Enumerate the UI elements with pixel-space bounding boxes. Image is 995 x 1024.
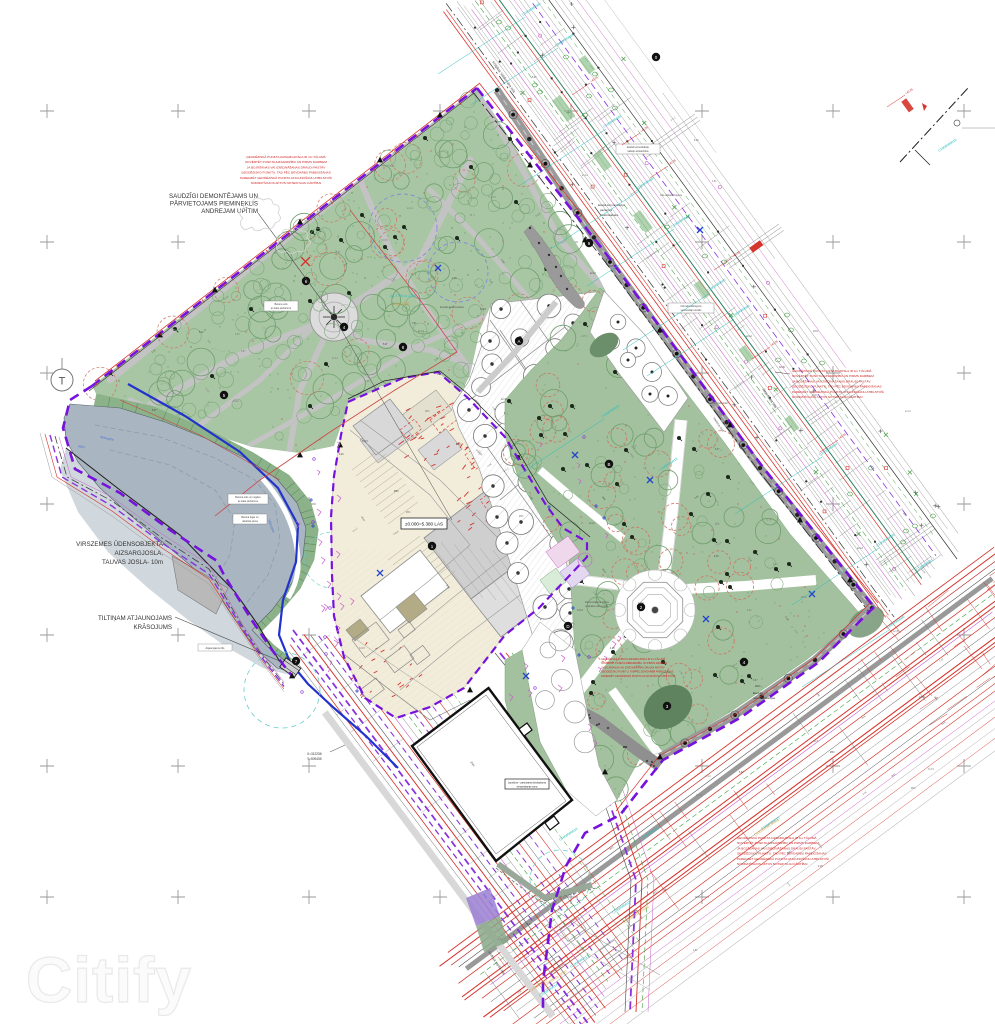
svg-text:±0.000=5.380 LAS: ±0.000=5.380 LAS — [405, 522, 443, 527]
svg-text:NOVĒRTĒT PUNKTA AIZSARDZĪBU UN: NOVĒRTĒT PUNKTA AIZSARDZĪBU UN PIRMS DAR… — [737, 841, 819, 845]
svg-text:5.42: 5.42 — [199, 332, 204, 334]
svg-text:Esošās: Esošās — [753, 691, 763, 695]
svg-text:Cits labiekārt.: Cits labiekārt. — [712, 401, 729, 405]
svg-text:6.20: 6.20 — [339, 454, 344, 456]
svg-text:Betona sols un nogāze: Betona sols un nogāze — [235, 496, 261, 499]
svg-text:5.07: 5.07 — [563, 898, 568, 900]
svg-text:h=2.5: h=2.5 — [928, 769, 935, 771]
svg-text:A: A — [517, 339, 520, 344]
svg-text:TILTIŅAM ATJAUNOJAMS: TILTIŅAM ATJAUNOJAMS — [98, 615, 172, 622]
svg-text:h=2.5: h=2.5 — [577, 610, 584, 612]
svg-text:3.81: 3.81 — [693, 950, 698, 952]
svg-text:Betona lejas un: Betona lejas un — [241, 516, 259, 519]
svg-text:3.81: 3.81 — [712, 181, 717, 183]
svg-text:Ø63: Ø63 — [830, 752, 835, 754]
svg-text:a=1.2: a=1.2 — [407, 208, 414, 210]
svg-text:ĢEODĒZISKO PUNKTU, TAD PĒC BŪV: ĢEODĒZISKO PUNKTU, TAD PĒC BŪVDARBU PABE… — [737, 851, 827, 856]
svg-text:Ø63: Ø63 — [425, 411, 430, 413]
svg-text:ĢEODĒZISKĀ PUNKTA AIZSARGJOSLA: ĢEODĒZISKĀ PUNKTA AIZSARGJOSLA IR 1m TĀL… — [601, 658, 666, 661]
svg-text:6.20: 6.20 — [694, 140, 699, 142]
svg-text:Esošā komunikāciju: Esošā komunikāciju — [598, 203, 625, 207]
svg-text:h=2.5: h=2.5 — [382, 240, 389, 242]
svg-text:atbalsta siena: atbalsta siena — [242, 520, 258, 523]
svg-text:a=1.2: a=1.2 — [582, 175, 589, 177]
svg-text:4.98: 4.98 — [610, 648, 615, 650]
svg-text:a=1.2: a=1.2 — [857, 548, 864, 550]
svg-text:uzskaites aka grodu: uzskaites aka grodu — [585, 604, 609, 608]
svg-text:2.15: 2.15 — [714, 556, 719, 558]
svg-text:3.81: 3.81 — [336, 252, 341, 254]
svg-text:a=1.2: a=1.2 — [746, 336, 753, 338]
svg-text:veloturētāji novads: veloturētāji novads — [681, 309, 703, 312]
svg-text:ar koka sēdvirsmu: ar koka sēdvirsmu — [271, 307, 292, 310]
svg-text:Ø63: Ø63 — [911, 788, 916, 790]
svg-text:2.15: 2.15 — [818, 866, 823, 868]
svg-text:elektrokabelis: elektrokabelis — [600, 213, 619, 217]
svg-text:kv-5: kv-5 — [814, 741, 819, 743]
svg-text:ĢEODĒZISKĀ PUNKTA AIZSARGJOSLA: ĢEODĒZISKĀ PUNKTA AIZSARGJOSLA IR 1m TĀL… — [792, 369, 872, 373]
svg-text:Ø63: Ø63 — [406, 512, 411, 514]
svg-text:X=312256: X=312256 — [307, 752, 322, 756]
svg-text:NOVĒRTĒT PUNKTA AIZSARDZĪBU UN: NOVĒRTĒT PUNKTA AIZSARDZĪBU UN PIRMS DAR… — [245, 160, 327, 164]
svg-text:Ag 2795 Ls 2295: Ag 2795 Ls 2295 — [390, 294, 416, 298]
svg-text:12.45: 12.45 — [501, 399, 507, 401]
svg-text:NORMATĪVAJOS AKTOS NOTEIKTAJAI: NORMATĪVAJOS AKTOS NOTEIKTAJAI KĀRTĪBAI — [792, 395, 863, 399]
svg-text:h=2.5: h=2.5 — [362, 441, 369, 443]
svg-text:PAREDZĒT ĢEODĒZISKĀ PUNKTA ATJ: PAREDZĒT ĢEODĒZISKĀ PUNKTA ATJAUNOŠANU A… — [240, 175, 332, 180]
svg-text:5.07: 5.07 — [753, 680, 758, 682]
svg-text:5.07: 5.07 — [532, 77, 537, 79]
svg-text:Atjaunojams tilts: Atjaunojams tilts — [206, 646, 226, 650]
svg-text:a=1.2: a=1.2 — [332, 358, 339, 360]
svg-text:6.20: 6.20 — [456, 444, 461, 446]
svg-text:PAREDZĒT ĢEODĒZISKĀ PUNKTA ATJ: PAREDZĒT ĢEODĒZISKĀ PUNKTA ATJAUNOŠANU A… — [601, 675, 676, 678]
svg-text:Esošās koka bankas: Esošās koka bankas — [440, 305, 464, 309]
svg-text:a=1.2: a=1.2 — [590, 273, 597, 275]
svg-text:JA BOJĀŠANAS VAI IZNĪCINĀŠANAS: JA BOJĀŠANAS VAI IZNĪCINĀŠANAS DRAUDI PA… — [792, 378, 872, 383]
svg-text:Ø110: Ø110 — [755, 686, 761, 688]
svg-text:12.45: 12.45 — [919, 697, 925, 699]
svg-text:5.07: 5.07 — [152, 410, 157, 412]
svg-text:Y=509455: Y=509455 — [307, 757, 322, 761]
svg-text:izmantošanas zona: izmantošanas zona — [517, 786, 538, 789]
svg-text:TAUVAS JOSLA- 10m: TAUVAS JOSLA- 10m — [102, 559, 163, 566]
svg-text:2.15: 2.15 — [452, 278, 457, 280]
svg-text:a=1.2: a=1.2 — [418, 331, 425, 333]
svg-text:ar koka sēdvirsmu: ar koka sēdvirsmu — [238, 500, 259, 503]
svg-text:KRĀSOJUMS: KRĀSOJUMS — [133, 624, 172, 631]
svg-text:Ø110: Ø110 — [233, 401, 239, 403]
svg-text:ĢEODĒZISKO PUNKTU, TAD PĒC BŪV: ĢEODĒZISKO PUNKTU, TAD PĒC BŪVDARBU PABE… — [241, 170, 331, 175]
svg-text:Demontējama ūdens: Demontējama ūdens — [585, 600, 610, 604]
svg-text:NORMATĪVAJOS AKTOS NOTEIKTAJAI: NORMATĪVAJOS AKTOS NOTEIKTAJAI KĀRTĪBAI — [737, 862, 808, 866]
svg-text:Ø63: Ø63 — [519, 516, 524, 518]
svg-text:a=1.2: a=1.2 — [589, 523, 596, 525]
svg-text:3.81: 3.81 — [412, 323, 417, 325]
svg-text:Cits labiekārtojums: Cits labiekārtojums — [660, 193, 683, 197]
svg-text:ĢEODĒZISKĀ PUNKTA AIZSARGJOSLA: ĢEODĒZISKĀ PUNKTA AIZSARGJOSLA IR 1m TĀL… — [737, 836, 817, 840]
svg-text:kv-5: kv-5 — [715, 524, 720, 526]
svg-text:2.15: 2.15 — [491, 197, 496, 199]
svg-text:h=2.5: h=2.5 — [638, 603, 645, 605]
svg-text:Jaunbūve - paredzamā būvlaukum: Jaunbūve - paredzamā būvlaukuma — [508, 782, 547, 785]
svg-text:Betona sols: Betona sols — [274, 303, 288, 306]
svg-text:2.15: 2.15 — [773, 564, 778, 566]
svg-text:T: T — [59, 376, 66, 388]
svg-text:12.45: 12.45 — [893, 631, 899, 633]
svg-text:JA BOJĀŠANAS VAI IZNĪCINĀŠANAS: JA BOJĀŠANAS VAI IZNĪCINĀŠANAS DRAUDI PA… — [601, 666, 665, 669]
svg-text:Esošā komunikāciju: Esošā komunikāciju — [627, 146, 650, 149]
svg-text:Ø110: Ø110 — [813, 331, 819, 333]
svg-text:5.07: 5.07 — [383, 344, 388, 346]
svg-text:ĢEODĒZISKĀ PUNKTA AIZSARGJOSLA: ĢEODĒZISKĀ PUNKTA AIZSARGJOSLA IR 1m TĀL… — [246, 155, 326, 159]
svg-text:Ø63: Ø63 — [394, 491, 399, 493]
svg-text:12.45: 12.45 — [779, 367, 785, 369]
svg-text:B: B — [607, 462, 610, 467]
svg-text:6.20: 6.20 — [498, 939, 503, 941]
svg-text:JA BOJĀŠANAS VAI IZNĪCINĀŠANAS: JA BOJĀŠANAS VAI IZNĪCINĀŠANAS DRAUDI PA… — [247, 164, 327, 169]
svg-text:a=1.2: a=1.2 — [905, 411, 912, 413]
svg-text:NOVĒRTĒT PUNKTA AIZSARDZĪBU UN: NOVĒRTĒT PUNKTA AIZSARDZĪBU UN PIRMS DAR… — [601, 662, 667, 665]
svg-text:nekomunikācijas: nekomunikācijas — [753, 696, 776, 700]
svg-text:ANDREJAM UPĪTIM: ANDREJAM UPĪTIM — [201, 208, 258, 215]
svg-text:NOVĒRTĒT PUNKTA AIZSARDZĪBU UN: NOVĒRTĒT PUNKTA AIZSARDZĪBU UN PIRMS DAR… — [792, 374, 874, 378]
svg-text:12.45: 12.45 — [696, 795, 702, 797]
svg-text:2.15: 2.15 — [581, 336, 586, 338]
svg-text:PAREDZĒT ĢEODĒZISKĀ PUNKTA ATJ: PAREDZĒT ĢEODĒZISKĀ PUNKTA ATJAUNOŠANU A… — [737, 856, 829, 861]
svg-text:5.07: 5.07 — [241, 351, 246, 353]
svg-text:Kopā: 5090: Kopā: 5090 — [393, 302, 410, 306]
svg-text:ĢEODĒZISKO PUNKTU, TAD PĒC BŪV: ĢEODĒZISKO PUNKTU, TAD PĒC BŪVDARBU PABE… — [792, 384, 882, 389]
svg-text:PAREDZĒT ĢEODĒZISKĀ PUNKTA ATJ: PAREDZĒT ĢEODĒZISKĀ PUNKTA ATJAUNOŠANU A… — [792, 389, 884, 394]
svg-text:AIZSARGJOSLA,: AIZSARGJOSLA, — [115, 550, 164, 557]
svg-text:5.07: 5.07 — [739, 772, 744, 774]
svg-text:NORMATĪVAJOS AKTOS NOTEIKTAJAI: NORMATĪVAJOS AKTOS NOTEIKTAJAI KĀRTĪBAI — [251, 181, 322, 185]
svg-text:SAUDZĪGI DEMONTĒJAMS UN: SAUDZĪGI DEMONTĒJAMS UN — [169, 193, 258, 200]
svg-text:PĀRVIETOJAMS PIEMINEKLIS: PĀRVIETOJAMS PIEMINEKLIS — [170, 201, 258, 208]
svg-text:5.07: 5.07 — [715, 449, 720, 451]
svg-text:5.07: 5.07 — [527, 924, 532, 926]
svg-text:JA BOJĀŠANAS VAI IZNĪCINĀŠANAS: JA BOJĀŠANAS VAI IZNĪCINĀŠANAS DRAUDI PA… — [737, 845, 817, 850]
svg-text:ĢEODĒZISKO PUNKTU, TAD PĒC BŪV: ĢEODĒZISKO PUNKTU, TAD PĒC BŪVDARBU PABE… — [601, 671, 674, 674]
svg-text:VIRSZEMES ŪDENSOBJEKTA: VIRSZEMES ŪDENSOBJEKTA — [76, 541, 164, 548]
svg-text:h=2.5: h=2.5 — [480, 309, 487, 311]
svg-text:a=1.2: a=1.2 — [705, 776, 712, 778]
svg-text:6.20: 6.20 — [747, 610, 752, 612]
svg-text:kabeļu aizsardzība: kabeļu aizsardzība — [628, 150, 649, 153]
svg-text:4.98: 4.98 — [365, 381, 370, 383]
svg-text:h=2.5: h=2.5 — [359, 648, 366, 650]
svg-text:6.20: 6.20 — [235, 334, 240, 336]
svg-text:Citify: Citify — [26, 944, 192, 1016]
svg-text:Ø63: Ø63 — [437, 374, 442, 376]
svg-text:5.42: 5.42 — [390, 166, 395, 168]
svg-text:pazemes: pazemes — [600, 208, 613, 212]
